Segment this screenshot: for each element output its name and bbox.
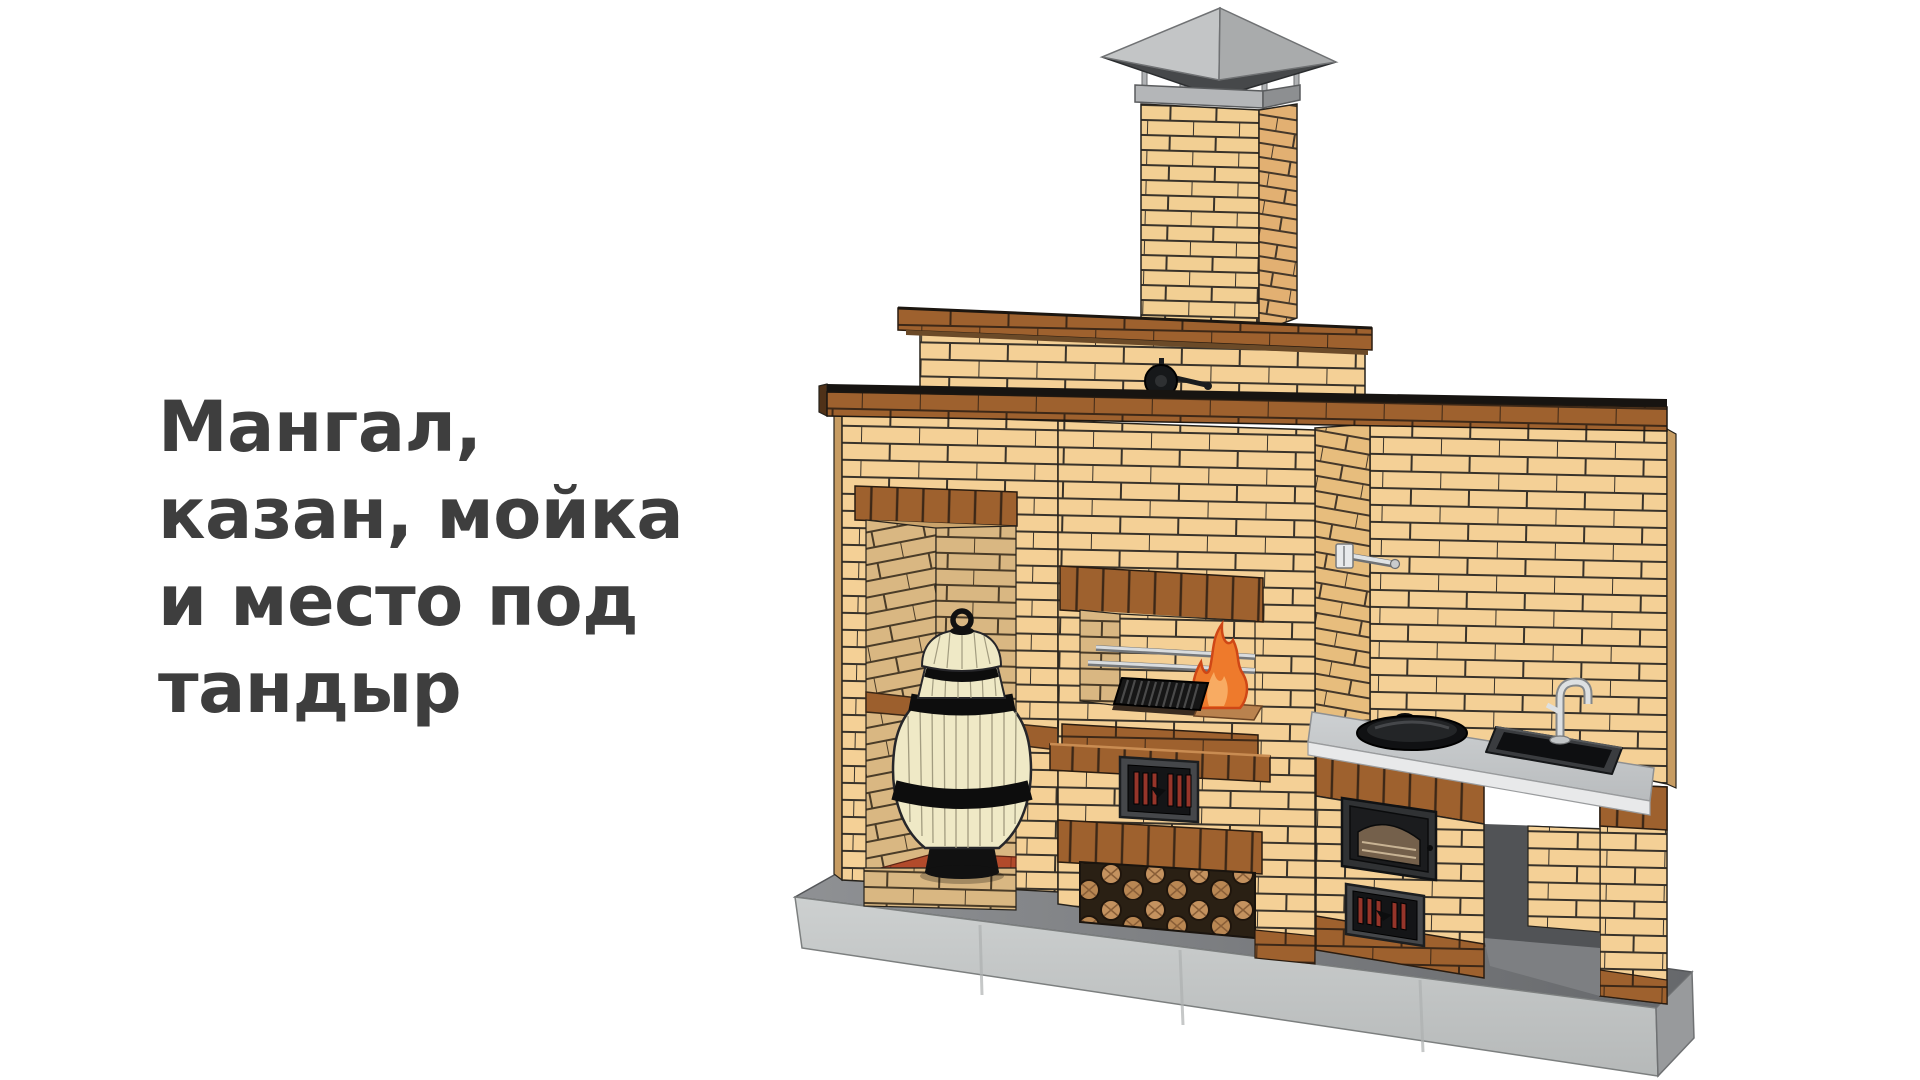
render-3d <box>0 0 1920 1080</box>
niche-lintel <box>855 486 1017 526</box>
central-side <box>1315 424 1370 724</box>
chimney <box>1102 8 1336 332</box>
ash-door <box>1120 757 1198 822</box>
grill <box>1080 610 1262 720</box>
stove-vent-door <box>1346 884 1424 946</box>
slide: Мангал, казан, мойка и место под тандыр <box>0 0 1920 1080</box>
grate <box>1114 678 1208 710</box>
tandoor-section <box>834 412 1058 910</box>
chimney-front <box>1141 104 1259 332</box>
oven-door <box>1342 798 1436 880</box>
kazan-stove <box>1316 752 1484 978</box>
chimney-side <box>1259 104 1297 332</box>
chimney-cap <box>1102 8 1336 97</box>
corner-pillar <box>1600 784 1667 1004</box>
